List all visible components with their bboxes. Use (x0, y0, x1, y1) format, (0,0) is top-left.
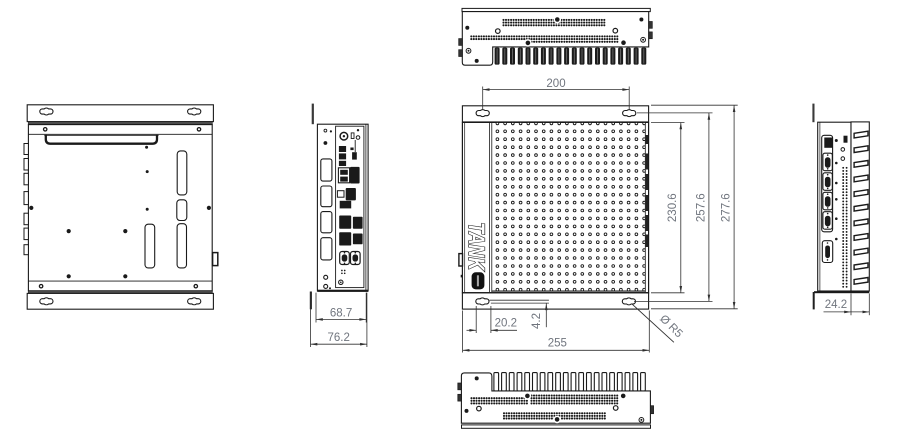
svg-text:24.2: 24.2 (825, 299, 847, 311)
svg-text:277.6: 277.6 (721, 193, 733, 222)
svg-text:200: 200 (546, 78, 565, 90)
svg-text:20.2: 20.2 (495, 317, 517, 329)
svg-text:257.6: 257.6 (695, 193, 707, 222)
svg-text:230.6: 230.6 (667, 193, 679, 222)
svg-text:255: 255 (548, 338, 567, 350)
svg-text:68.7: 68.7 (330, 307, 352, 319)
svg-text:4.2: 4.2 (531, 313, 543, 329)
svg-text:76.2: 76.2 (328, 332, 350, 344)
svg-text:TANK: TANK (464, 222, 489, 272)
